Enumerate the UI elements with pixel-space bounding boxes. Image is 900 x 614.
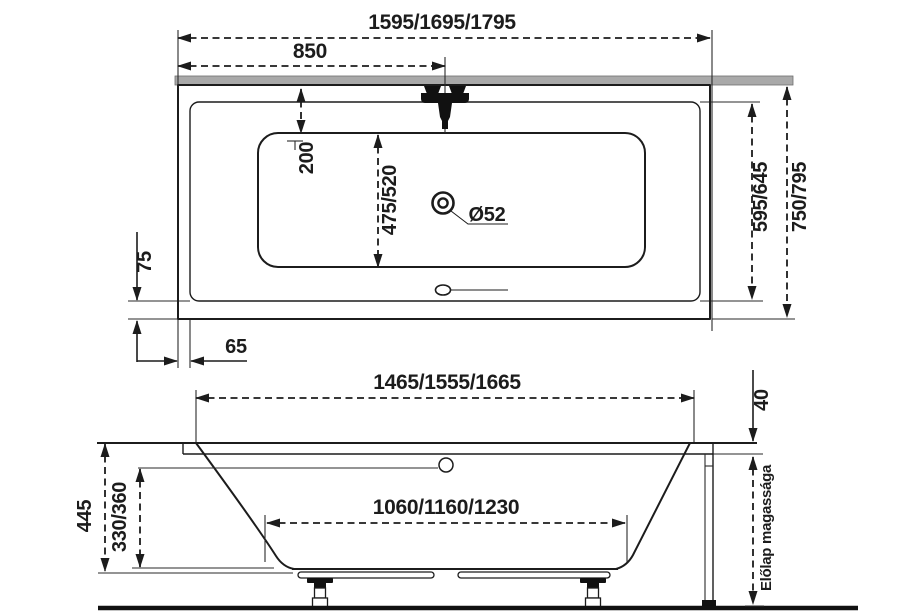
top-view: Ø52 1595/1695/1795 850 200 475/520 595/6… bbox=[128, 11, 811, 368]
dim-faucet-offset: 850 bbox=[293, 40, 327, 63]
support-board-left bbox=[298, 572, 434, 578]
tub-left-slope bbox=[196, 443, 294, 569]
side-view: 1465/1555/1665 40 Előlap magassága 445 3… bbox=[74, 370, 858, 608]
dim-side-rim-width: 65 bbox=[225, 336, 247, 358]
bathtub-dimension-drawing: Ø52 1595/1695/1795 850 200 475/520 595/6… bbox=[0, 0, 900, 614]
dim-rim-height: 40 bbox=[751, 389, 773, 411]
dim-rim-to-basin: 200 bbox=[296, 142, 318, 175]
overflow-outlet bbox=[436, 285, 509, 295]
dim-overall-width: 750/795 bbox=[789, 162, 811, 232]
support-board-right bbox=[458, 572, 610, 578]
dim-underrim-length: 1465/1555/1665 bbox=[373, 371, 521, 394]
foot-left bbox=[307, 578, 333, 607]
dim-total-depth: 445 bbox=[74, 500, 96, 533]
dim-panel-height-label: Előlap magassága bbox=[758, 464, 775, 591]
technical-drawing-page: Ø52 1595/1695/1795 850 200 475/520 595/6… bbox=[0, 0, 900, 614]
dim-basin-width: 475/520 bbox=[379, 165, 401, 235]
dim-drain-diameter: Ø52 bbox=[469, 204, 506, 226]
dim-bottom-rim-width: 75 bbox=[134, 251, 156, 273]
dim-base-length: 1060/1160/1230 bbox=[373, 496, 519, 519]
overflow-circle bbox=[439, 458, 453, 472]
dim-inner-width: 595/645 bbox=[750, 162, 772, 232]
foot-right bbox=[580, 578, 606, 607]
dim-inner-depth: 330/360 bbox=[109, 482, 131, 552]
wall-strip bbox=[175, 76, 793, 85]
dim-overall-length: 1595/1695/1795 bbox=[368, 11, 516, 34]
